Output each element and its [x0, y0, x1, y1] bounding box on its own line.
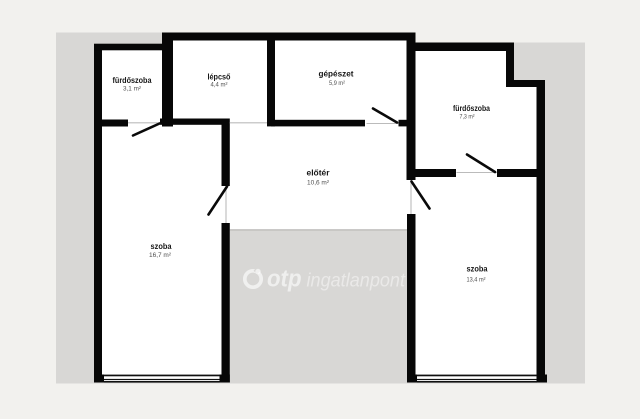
svg-text:lépcső: lépcső [208, 72, 231, 82]
svg-text:fürdőszoba: fürdőszoba [453, 103, 490, 113]
svg-text:szoba: szoba [151, 241, 172, 251]
svg-text:3,1 m²: 3,1 m² [123, 86, 142, 93]
svg-text:13,4 m²: 13,4 m² [467, 277, 487, 284]
svg-text:gépészet: gépészet [319, 69, 354, 79]
svg-text:7,3 m²: 7,3 m² [460, 114, 476, 121]
svg-text:otp: otp [267, 266, 302, 293]
svg-text:5,9 m²: 5,9 m² [329, 80, 346, 87]
svg-text:4,4 m²: 4,4 m² [211, 82, 229, 89]
svg-text:szoba: szoba [467, 264, 488, 274]
svg-text:16,7 m²: 16,7 m² [149, 252, 172, 259]
svg-text:fürdőszoba: fürdőszoba [113, 75, 152, 85]
svg-text:10,6 m²: 10,6 m² [307, 180, 330, 187]
svg-text:ingatlanpont: ingatlanpont [307, 270, 407, 292]
svg-text:előtér: előtér [307, 168, 331, 178]
